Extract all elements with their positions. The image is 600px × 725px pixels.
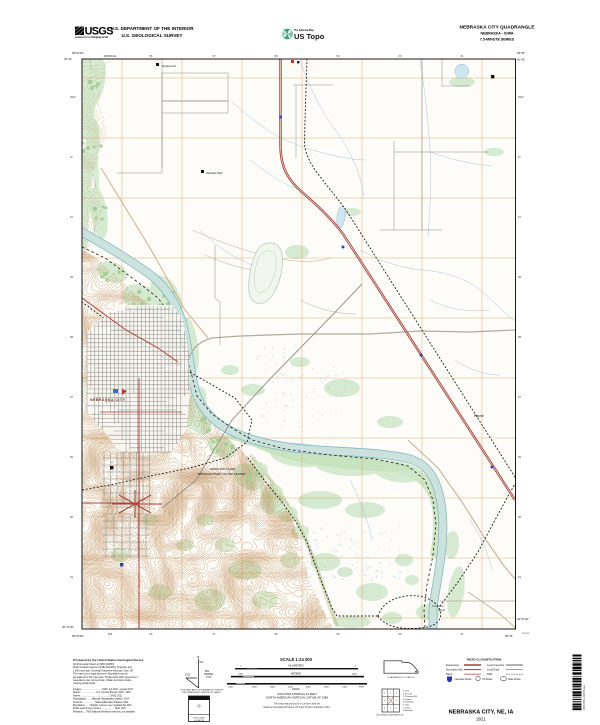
svg-text:NORTH AMERICAN VERTICAL DATUM: NORTH AMERICAN VERTICAL DATUM OF 1988: [266, 696, 328, 700]
svg-text:3000: 3000: [270, 687, 276, 689]
svg-text:ISBN 978-1-60775-xxxx: ISBN 978-1-60775-xxxx: [583, 684, 586, 710]
svg-text:generalized for this map scale: generalized for this map scale. Private …: [73, 676, 138, 679]
svg-text:entering private lands.: entering private lands.: [73, 682, 96, 685]
svg-text:1000: 1000: [238, 673, 244, 675]
svg-text:95°45': 95°45': [505, 634, 513, 638]
svg-text:Secondary Hwy: Secondary Hwy: [446, 669, 464, 672]
svg-text:Expressway: Expressway: [446, 664, 460, 667]
svg-text:World Geodetic System of 1984: World Geodetic System of 1984 (WGS84). P…: [73, 666, 132, 669]
svg-text:Local Connector: Local Connector: [487, 664, 505, 667]
svg-text:National Geospatial Program US: National Geospatial Program US Topo Prod…: [264, 706, 331, 709]
svg-text:Interstate Route: Interstate Route: [455, 678, 473, 681]
svg-text:Roads.........................: Roads..........................U.S. Cens…: [73, 691, 131, 694]
svg-text:8 Nemaha: 8 Nemaha: [403, 710, 413, 712]
svg-text:40°37'30": 40°37'30": [62, 625, 74, 629]
svg-text:Snugmout: Snugmout: [432, 604, 444, 608]
svg-text:US Route: US Route: [482, 678, 493, 681]
svg-text:Steinhart Park: Steinhart Park: [206, 171, 223, 175]
svg-text:1 Paul: 1 Paul: [403, 691, 409, 693]
svg-text:40°37'30": 40°37'30": [517, 617, 529, 621]
svg-text:Boundaries.........Multiple so: Boundaries.........Multiple sources; see…: [73, 704, 132, 707]
svg-text:Payne: Payne: [474, 414, 484, 418]
svg-text:MN: MN: [205, 669, 209, 673]
svg-text:4000: 4000: [288, 687, 294, 689]
svg-text:ADJOINING QUADRANGLES: ADJOINING QUADRANGLES: [377, 714, 404, 717]
svg-text:Names.........................: Names...................................…: [73, 695, 123, 697]
svg-text:MISSOURI RIVER VISITOR CENTER: MISSOURI RIVER VISITOR CENTER: [198, 472, 245, 476]
svg-text:2021: 2021: [476, 717, 486, 722]
svg-text:Island: Island: [438, 608, 445, 612]
svg-text:95°45': 95°45': [517, 51, 525, 55]
svg-text:Contours....................Na: Contours....................National Ele…: [73, 701, 129, 704]
svg-text:4512: 4512: [518, 95, 524, 99]
svg-text:NEBRASKA - IOWA: NEBRASKA - IOWA: [480, 32, 513, 36]
svg-text:science for a changing world: science for a changing world: [75, 36, 108, 39]
svg-text:★: ★: [197, 655, 200, 659]
svg-text:3 Thurman SW: 3 Thurman SW: [403, 695, 417, 698]
svg-text:4512: 4512: [70, 95, 76, 99]
svg-text:U.S. GEOLOGICAL SURVEY: U.S. GEOLOGICAL SURVEY: [121, 33, 182, 38]
svg-text:7.5-MINUTE SERIES: 7.5-MINUTE SERIES: [480, 38, 515, 42]
svg-text:NEBRASKA CITY: NEBRASKA CITY: [90, 398, 126, 402]
svg-text:QUADRANGLE LOCATION: QUADRANGLE LOCATION: [388, 676, 415, 679]
svg-text:US Topo: US Topo: [294, 32, 325, 41]
svg-text:Interior: Interior: [522, 632, 530, 635]
svg-text:This map is not a legal docume: This map is not a legal document. Bounda…: [73, 673, 128, 676]
svg-text:4WD: 4WD: [487, 673, 493, 676]
svg-text:2 Percival: 2 Percival: [403, 692, 413, 695]
svg-text:Public Land Survey System.....: Public Land Survey System...............…: [73, 707, 127, 710]
svg-text:SCALE 1:24 000: SCALE 1:24 000: [280, 657, 313, 662]
svg-text:LEWIS AND CLARK: LEWIS AND CLARK: [210, 467, 235, 471]
svg-text:5 Hamburg: 5 Hamburg: [403, 701, 414, 704]
svg-text:6000: 6000: [324, 687, 330, 689]
svg-text:Local Road: Local Road: [487, 669, 500, 672]
svg-text:NEBRASKA CITY QUADRANGLE: NEBRASKA CITY QUADRANGLE: [460, 25, 536, 31]
svg-text:95°52'30": 95°52'30": [72, 634, 84, 638]
svg-text:Imagery.......................: Imagery.................................…: [73, 688, 134, 691]
svg-text:5000: 5000: [306, 687, 312, 689]
svg-text:4 Dunbar: 4 Dunbar: [403, 698, 412, 701]
svg-text:reservations may not be shown.: reservations may not be shown. Obtain pe…: [73, 679, 132, 682]
svg-text:KILOMETERS: KILOMETERS: [288, 665, 304, 668]
svg-text:1°52': 1°52': [185, 674, 191, 677]
svg-text:Wyuka Cem: Wyuka Cem: [162, 64, 176, 68]
svg-text:Ramp: Ramp: [446, 673, 453, 676]
svg-text:0°16': 0°16': [206, 676, 212, 679]
svg-text:Wetlands......FWS National Wet: Wetlands......FWS National Wetlands Inve…: [73, 710, 136, 713]
svg-text:1 000-meter grid: Universal Tr: 1 000-meter grid: Universal Transverse M…: [73, 669, 134, 672]
svg-text:NEBRASKA CITY, NE, IA: NEBRASKA CITY, NE, IA: [449, 710, 514, 716]
svg-text:FEET: FEET: [359, 687, 365, 689]
svg-text:40°45': 40°45': [517, 58, 525, 62]
svg-text:U.S. DEPARTMENT OF THE INTERIO: U.S. DEPARTMENT OF THE INTERIOR: [110, 26, 194, 31]
svg-text:7 Julian: 7 Julian: [403, 707, 411, 709]
svg-text:1000: 1000: [228, 687, 234, 689]
svg-text:GN: GN: [200, 660, 204, 664]
svg-text:State Route: State Route: [508, 678, 521, 681]
svg-text:95°52'30": 95°52'30": [72, 51, 84, 55]
svg-text:ROAD CLASSIFICATION: ROAD CLASSIFICATION: [467, 658, 502, 662]
svg-text:265000mE: 265000mE: [104, 54, 117, 58]
svg-text:265: 265: [108, 632, 113, 636]
svg-text:Produced by the United States: Produced by the United States Geological…: [73, 658, 144, 662]
svg-text:North American Datum of 1983 (: North American Datum of 1983 (NAD83): [73, 663, 114, 666]
svg-text:Hydrography.........National H: Hydrography.........National Hydrography…: [73, 698, 130, 701]
svg-text:2000: 2000: [252, 687, 258, 689]
svg-text:7000: 7000: [342, 687, 348, 689]
svg-text:40°45': 40°45': [64, 57, 72, 61]
svg-text:2000: 2000: [352, 673, 358, 675]
svg-text:MILES: MILES: [292, 688, 300, 691]
svg-text:LOCATION: LOCATION: [194, 719, 205, 722]
svg-text:DECLINATION AT CENTER OF SHEET: DECLINATION AT CENTER OF SHEET: [182, 691, 221, 694]
svg-text:METERS: METERS: [291, 672, 301, 675]
svg-text:6 Otoe: 6 Otoe: [403, 704, 410, 707]
